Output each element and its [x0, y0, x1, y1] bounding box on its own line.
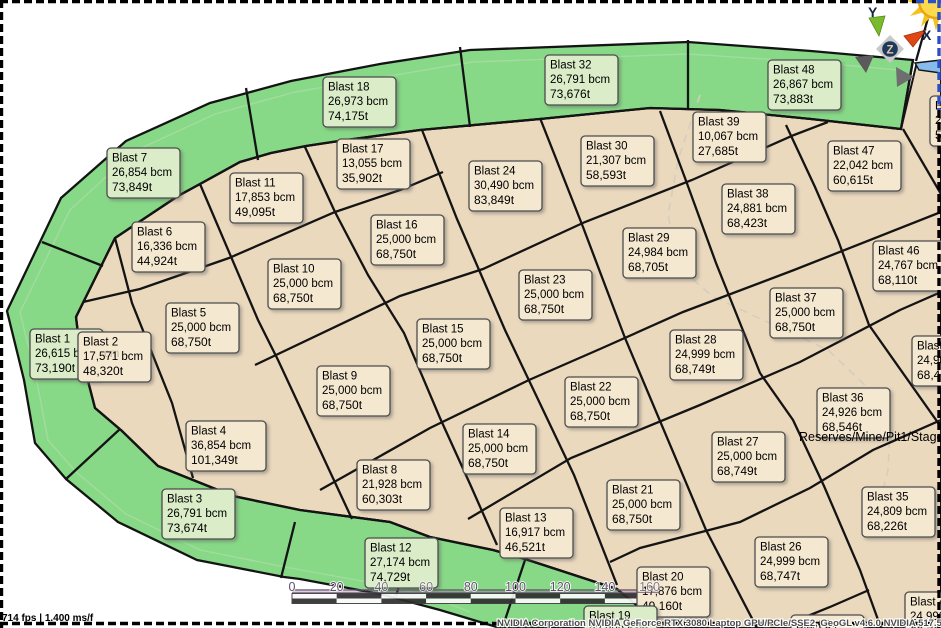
svg-text:Blast 32: Blast 32: [550, 60, 592, 72]
svg-text:Reserves/Mine/Pit1/Stage1: Reserves/Mine/Pit1/Stage1: [799, 430, 941, 444]
svg-text:X: X: [922, 27, 932, 43]
svg-text:68,110t: 68,110t: [878, 273, 918, 287]
svg-text:58,593t: 58,593t: [586, 168, 627, 182]
svg-text:22,042 bcm: 22,042 bcm: [833, 160, 893, 172]
svg-text:Blast 1: Blast 1: [35, 334, 70, 346]
svg-text:0: 0: [289, 580, 296, 594]
svg-text:48,320t: 48,320t: [83, 364, 124, 378]
svg-text:68,750t: 68,750t: [422, 351, 463, 365]
svg-text:Blast 26: Blast 26: [760, 542, 802, 554]
svg-text:25,000 bcm: 25,000 bcm: [468, 443, 528, 455]
svg-text:16,917 bcm: 16,917 bcm: [505, 527, 565, 539]
svg-text:60,303t: 60,303t: [362, 492, 403, 506]
svg-text:Blast 28: Blast 28: [675, 335, 717, 347]
svg-text:25,000 bcm: 25,000 bcm: [273, 278, 333, 290]
svg-text:49,095t: 49,095t: [235, 205, 276, 219]
svg-text:30,490 bcm: 30,490 bcm: [474, 180, 534, 192]
svg-text:68,750t: 68,750t: [468, 456, 509, 470]
svg-text:Blast 2: Blast 2: [83, 337, 118, 349]
svg-text:Blast 13: Blast 13: [505, 513, 547, 525]
svg-text:Blast 3: Blast 3: [167, 494, 202, 506]
svg-text:26,854 bcm: 26,854 bcm: [112, 167, 172, 179]
svg-text:26,867 bcm: 26,867 bcm: [773, 79, 833, 91]
svg-text:Blast 36: Blast 36: [822, 393, 864, 405]
svg-text:25,000 bcm: 25,000 bcm: [524, 289, 584, 301]
svg-text:Blast 11: Blast 11: [235, 178, 276, 190]
svg-text:160: 160: [639, 580, 660, 594]
svg-text:Blast 9: Blast 9: [322, 371, 357, 383]
svg-text:16,336 bcm: 16,336 bcm: [137, 241, 197, 253]
svg-text:68,750t: 68,750t: [612, 512, 653, 526]
svg-text:100: 100: [505, 580, 526, 594]
svg-text:68,747t: 68,747t: [760, 569, 801, 583]
svg-text:Blast 44: Blast 44: [910, 597, 941, 609]
svg-text:73,676t: 73,676t: [550, 87, 591, 101]
svg-text:24,809 bcm: 24,809 bcm: [867, 506, 927, 518]
svg-text:24,926 bcm: 24,926 bcm: [822, 407, 882, 419]
svg-text:73,883t: 73,883t: [773, 92, 814, 106]
svg-text:68,750t: 68,750t: [273, 291, 314, 305]
svg-text:68,750t: 68,750t: [775, 320, 816, 334]
svg-text:24,999 bcm: 24,999 bcm: [760, 556, 820, 568]
svg-text:Blast 46: Blast 46: [878, 246, 920, 258]
svg-text:714 fps | 1.400 ms/f: 714 fps | 1.400 ms/f: [2, 613, 94, 624]
svg-text:Blast 14: Blast 14: [468, 429, 510, 441]
svg-text:74,175t: 74,175t: [328, 109, 369, 123]
svg-text:Z: Z: [886, 45, 893, 57]
svg-text:27,685t: 27,685t: [698, 144, 739, 158]
svg-text:83,849t: 83,849t: [474, 193, 515, 207]
svg-text:25,000 bcm: 25,000 bcm: [612, 499, 672, 511]
svg-text:26,791 bcm: 26,791 bcm: [167, 508, 227, 520]
svg-text:25,000 bcm: 25,000 bcm: [171, 322, 231, 334]
svg-text:Blast 39: Blast 39: [698, 117, 740, 129]
svg-text:Blast 29: Blast 29: [628, 233, 670, 245]
svg-text:13,055 bcm: 13,055 bcm: [342, 158, 402, 170]
svg-text:26,791 bcm: 26,791 bcm: [550, 74, 610, 86]
svg-text:80: 80: [464, 580, 478, 594]
svg-text:Blast 37: Blast 37: [775, 293, 817, 305]
svg-text:Y: Y: [868, 4, 878, 20]
svg-text:Blast 5: Blast 5: [171, 308, 206, 320]
svg-text:73,190t: 73,190t: [35, 361, 76, 375]
svg-text:68,423t: 68,423t: [727, 216, 768, 230]
svg-text:27,174 bcm: 27,174 bcm: [370, 557, 430, 569]
svg-text:46,521t: 46,521t: [505, 540, 546, 554]
svg-text:Blast 27: Blast 27: [717, 437, 759, 449]
svg-text:Blast 15: Blast 15: [422, 324, 464, 336]
svg-text:68,750t: 68,750t: [322, 398, 363, 412]
svg-text:140: 140: [594, 580, 615, 594]
svg-text:cm: cm: [104, 348, 119, 360]
svg-text:20: 20: [330, 580, 344, 594]
svg-text:Blast 35: Blast 35: [867, 492, 909, 504]
svg-text:Blast 22: Blast 22: [570, 382, 612, 394]
svg-text:Blast 48: Blast 48: [773, 65, 815, 77]
svg-text:Blast 8: Blast 8: [362, 465, 397, 477]
svg-text:17,853 bcm: 17,853 bcm: [235, 192, 295, 204]
svg-text:25,000 bcm: 25,000 bcm: [376, 234, 436, 246]
svg-text:68,226t: 68,226t: [867, 519, 908, 533]
svg-text:Blast 24: Blast 24: [474, 166, 516, 178]
svg-text:25,000 bcm: 25,000 bcm: [322, 385, 382, 397]
svg-text:NVIDIA Corporation NVIDIA GeFo: NVIDIA Corporation NVIDIA GeForce RTX 30…: [497, 618, 941, 628]
svg-text:120: 120: [550, 580, 571, 594]
svg-text:60,615t: 60,615t: [833, 173, 874, 187]
svg-text:21,928 bcm: 21,928 bcm: [362, 479, 422, 491]
svg-text:25,000 bcm: 25,000 bcm: [570, 396, 630, 408]
svg-text:24,999 bcm: 24,999 bcm: [675, 349, 735, 361]
svg-text:68,749t: 68,749t: [717, 464, 758, 478]
svg-text:25,000 bcm: 25,000 bcm: [775, 307, 835, 319]
svg-text:36,854 bcm: 36,854 bcm: [191, 440, 251, 452]
svg-text:Blast 10: Blast 10: [273, 264, 315, 276]
svg-text:Blast 38: Blast 38: [727, 189, 769, 201]
svg-text:24,881 bcm: 24,881 bcm: [727, 203, 787, 215]
svg-text:68,705t: 68,705t: [628, 260, 669, 274]
svg-text:Blast 16: Blast 16: [376, 220, 418, 232]
svg-text:68,750t: 68,750t: [524, 302, 565, 316]
svg-text:10,067 bcm: 10,067 bcm: [698, 131, 758, 143]
svg-text:35,902t: 35,902t: [342, 171, 383, 185]
svg-text:Blast 23: Blast 23: [524, 275, 566, 287]
svg-text:25,000 bcm: 25,000 bcm: [717, 451, 777, 463]
svg-text:24,984 bcm: 24,984 bcm: [628, 247, 688, 259]
svg-text:Blast 18: Blast 18: [328, 82, 370, 94]
svg-text:68,750t: 68,750t: [171, 335, 212, 349]
svg-text:26,973 bcm: 26,973 bcm: [328, 96, 388, 108]
svg-text:60: 60: [419, 580, 433, 594]
svg-text:Blast 47: Blast 47: [833, 146, 875, 158]
svg-text:44,924t: 44,924t: [137, 254, 178, 268]
svg-text:Blast 17: Blast 17: [342, 144, 384, 156]
svg-text:Blast 12: Blast 12: [370, 543, 412, 555]
svg-text:21,307 bcm: 21,307 bcm: [586, 155, 646, 167]
svg-text:Blast 7: Blast 7: [112, 153, 147, 165]
svg-text:73,849t: 73,849t: [112, 180, 153, 194]
svg-text:24,767 bcm: 24,767 bcm: [878, 260, 938, 272]
svg-text:73,674t: 73,674t: [167, 521, 208, 535]
svg-text:Blast 4: Blast 4: [191, 426, 227, 438]
svg-text:25,000 bcm: 25,000 bcm: [422, 338, 482, 350]
svg-text:Blast 21: Blast 21: [612, 485, 654, 497]
svg-text:Blast 30: Blast 30: [586, 141, 628, 153]
svg-text:68,749t: 68,749t: [675, 362, 716, 376]
svg-text:40: 40: [374, 580, 388, 594]
svg-text:68,750t: 68,750t: [570, 409, 611, 423]
svg-text:68,750t: 68,750t: [376, 247, 417, 261]
svg-text:101,349t: 101,349t: [191, 453, 238, 467]
svg-text:Blast 6: Blast 6: [137, 227, 172, 239]
